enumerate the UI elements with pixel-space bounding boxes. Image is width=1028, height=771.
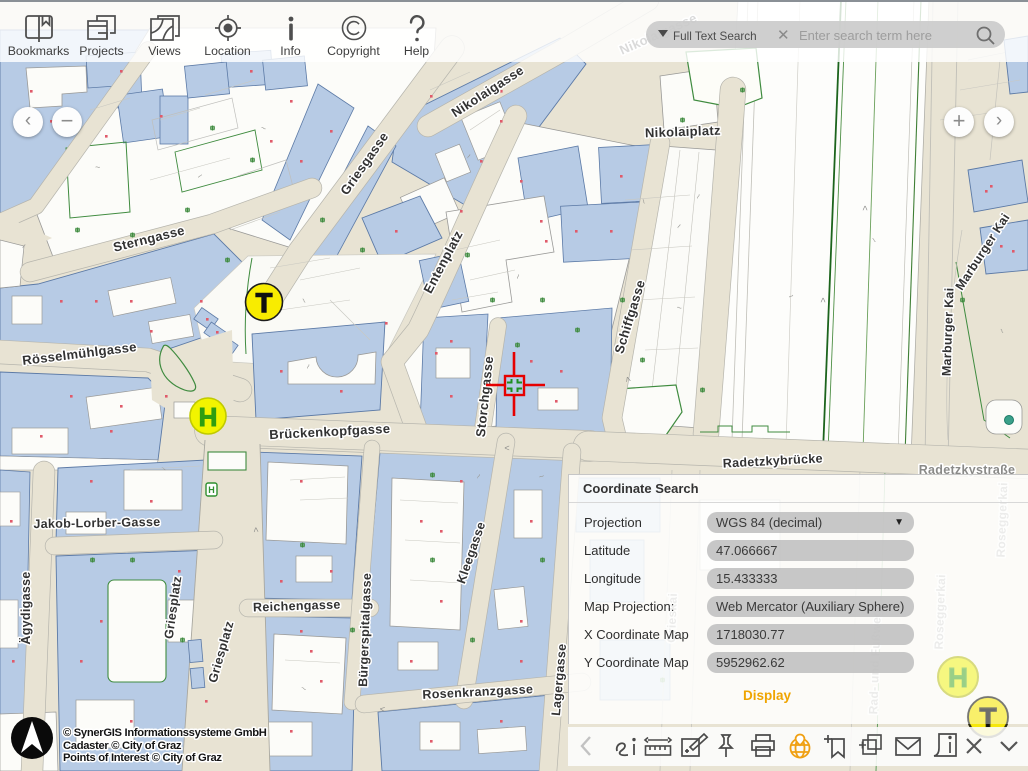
svg-text:Points of Interest © City of G: Points of Interest © City of Graz — [63, 752, 222, 764]
svg-text:Ägydigasse: Ägydigasse — [18, 571, 33, 644]
svg-text:Cadaster © City of Graz: Cadaster © City of Graz — [63, 740, 182, 752]
svg-text:H: H — [208, 485, 215, 495]
svg-text:~: ~ — [95, 162, 101, 172]
svg-text:© SynerGIS Informationssysteme: © SynerGIS Informationssysteme GmbH — [63, 727, 267, 739]
svg-text:T: T — [256, 288, 273, 318]
svg-text:<: < — [251, 527, 261, 533]
svg-text:H: H — [948, 662, 968, 693]
svg-text:Nikolaiplatz: Nikolaiplatz — [645, 123, 722, 141]
svg-text:<: < — [818, 297, 828, 302]
svg-text:H: H — [199, 402, 218, 432]
svg-text:<: < — [860, 205, 870, 210]
svg-text:Jakob-Lorber-Gasse: Jakob-Lorber-Gasse — [33, 515, 160, 531]
svg-text:<: < — [504, 443, 509, 453]
